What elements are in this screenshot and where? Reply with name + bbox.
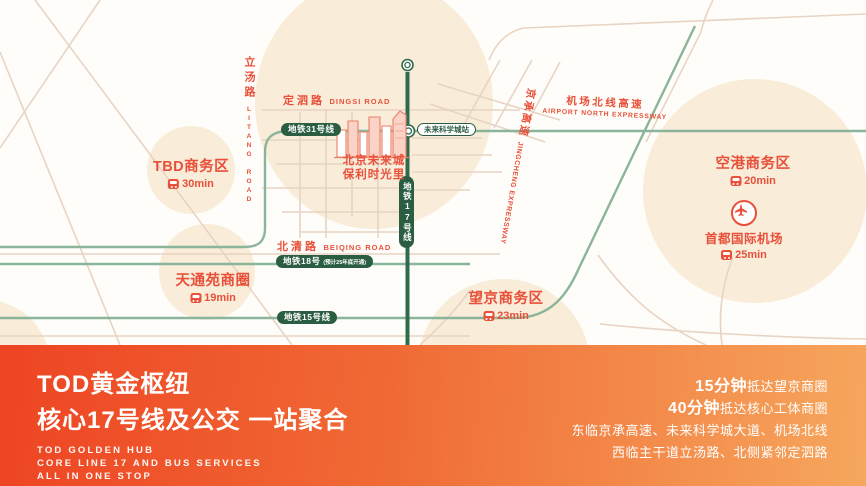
transit-map: 立汤路 LITANG ROAD 定泗路 DINGSI ROAD 北清路 BEIQ… xyxy=(0,0,866,345)
road-dingsi-en: DINGSI ROAD xyxy=(329,97,390,106)
district-konggang: 空港商务区 20min xyxy=(716,152,791,187)
road-label-dingsi: 定泗路 DINGSI ROAD xyxy=(283,91,390,109)
district-tbd-name: TBD商务区 xyxy=(153,155,229,176)
banner-title-line1: TOD黄金枢纽 xyxy=(37,369,348,400)
station-badge-future-science-city: 未来科学城站 xyxy=(417,123,476,136)
district-tiantongyuan-name: 天通苑商圈 xyxy=(176,269,251,290)
highlight-4-rest: 西临主干道立汤路、北侧紧邻定泗路 xyxy=(612,445,828,460)
district-tbd-time: 30min xyxy=(182,178,214,190)
airport-time: 25min xyxy=(735,249,767,261)
bus-icon xyxy=(721,250,732,260)
metro-badge-line15: 地铁15号线 xyxy=(277,311,337,324)
road-beiqing-en: BEIQING ROAD xyxy=(323,243,391,252)
banner-title-line2: 核心17号线及公交 一站聚合 xyxy=(37,405,348,436)
airport-label: 首都国际机场 25min xyxy=(705,228,783,261)
project-label: 北京未来城 保利时光里 xyxy=(343,155,406,183)
highlight-line-2: 40分钟抵达核心工体商圈 xyxy=(571,398,828,420)
highlight-2-bold: 40分钟 xyxy=(668,400,720,417)
district-wangjing: 望京商务区 23min xyxy=(469,287,544,322)
highlight-3-rest: 东临京承高速、未来科学城大道、机场北线 xyxy=(571,423,828,438)
bus-icon xyxy=(190,293,201,303)
road-beiqing-zh: 北清路 xyxy=(277,241,319,253)
banner-subtitle-en-line1: TOD GOLDEN HUB xyxy=(37,445,348,458)
airport-name: 首都国际机场 xyxy=(705,228,783,247)
banner-left-block: TOD黄金枢纽 核心17号线及公交 一站聚合 TOD GOLDEN HUB CO… xyxy=(37,369,348,484)
road-litang-zh: 立汤路 xyxy=(241,56,257,101)
road-litang-en: LITANG ROAD xyxy=(246,106,253,205)
district-konggang-time: 20min xyxy=(744,175,776,187)
banner-highlights: 15分钟抵达望京商圈 40分钟抵达核心工体商圈 东临京承高速、未来科学城大道、机… xyxy=(571,376,828,464)
banner-subtitle-en-line3: ALL IN ONE STOP xyxy=(37,471,348,484)
banner-subtitle-en: TOD GOLDEN HUB CORE LINE 17 AND BUS SERV… xyxy=(37,445,348,483)
metro-badge-line18-label: 地铁18号 xyxy=(283,256,320,266)
district-tiantongyuan-time: 19min xyxy=(204,292,236,304)
highlight-line-1: 15分钟抵达望京商圈 xyxy=(571,376,828,398)
road-dingsi-zh: 定泗路 xyxy=(283,95,325,107)
road-label-litang: 立汤路 LITANG ROAD xyxy=(241,56,257,205)
banner-subtitle-en-line2: CORE LINE 17 AND BUS SERVICES xyxy=(37,458,348,471)
metro-badge-line18-note: (预计25年底开通) xyxy=(323,260,366,266)
metro-badge-line18: 地铁18号 (预计25年底开通) xyxy=(276,255,373,268)
metro-badge-line17: 地铁17号线 xyxy=(399,176,414,248)
bus-icon xyxy=(168,179,179,189)
bus-icon xyxy=(730,176,741,186)
district-tiantongyuan: 天通苑商圈 19min xyxy=(176,269,251,304)
marketing-banner: TOD黄金枢纽 核心17号线及公交 一站聚合 TOD GOLDEN HUB CO… xyxy=(0,345,866,486)
bus-icon xyxy=(483,311,494,321)
road-label-beiqing: 北清路 BEIQING ROAD xyxy=(277,237,391,255)
project-name-line2: 保利时光里 xyxy=(343,169,406,183)
highlight-2-rest: 抵达核心工体商圈 xyxy=(720,401,828,416)
district-wangjing-name: 望京商务区 xyxy=(469,287,544,308)
highlight-line-3: 东临京承高速、未来科学城大道、机场北线 xyxy=(571,420,828,442)
district-tbd: TBD商务区 30min xyxy=(153,155,229,190)
project-name-line1: 北京未来城 xyxy=(343,155,406,169)
map-poster: 立汤路 LITANG ROAD 定泗路 DINGSI ROAD 北清路 BEIQ… xyxy=(0,0,866,486)
highlight-line-4: 西临主干道立汤路、北侧紧邻定泗路 xyxy=(571,442,828,464)
airplane-icon xyxy=(731,200,757,226)
district-konggang-name: 空港商务区 xyxy=(716,152,791,173)
highlight-1-bold: 15分钟 xyxy=(695,378,747,395)
metro-badge-line31: 地铁31号线 xyxy=(281,123,341,136)
district-wangjing-time: 23min xyxy=(497,310,529,322)
highlight-1-rest: 抵达望京商圈 xyxy=(747,379,828,394)
